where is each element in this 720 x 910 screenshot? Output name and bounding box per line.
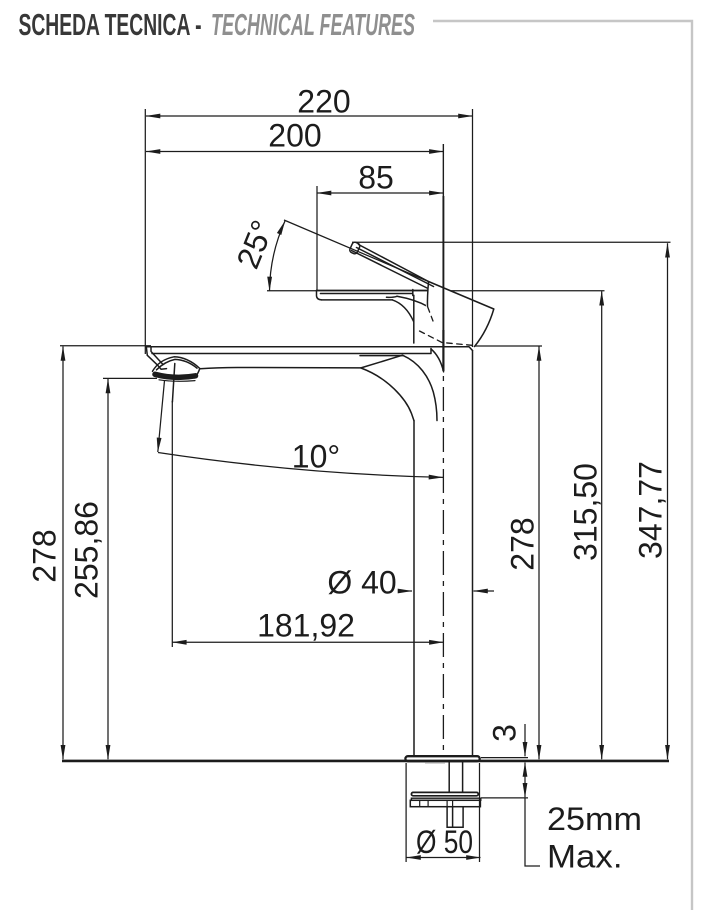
svg-text:278: 278	[505, 517, 541, 570]
svg-text:10°: 10°	[292, 439, 340, 475]
svg-text:278: 278	[27, 529, 63, 582]
svg-text:181,92: 181,92	[257, 608, 355, 644]
svg-text:255,86: 255,86	[69, 501, 105, 599]
svg-text:315,50: 315,50	[568, 463, 604, 561]
svg-text:Max.: Max.	[547, 839, 623, 875]
svg-text:220: 220	[297, 84, 350, 120]
svg-text:25mm: 25mm	[547, 801, 642, 837]
svg-text:TECHNICAL FEATURES: TECHNICAL FEATURES	[211, 7, 415, 42]
svg-text:Ø 40: Ø 40	[327, 565, 396, 601]
svg-text:Ø 50: Ø 50	[416, 824, 473, 860]
svg-text:85: 85	[358, 160, 394, 196]
svg-text:200: 200	[268, 118, 321, 154]
svg-text:3: 3	[487, 724, 523, 742]
svg-text:SCHEDA TECNICA -: SCHEDA TECNICA -	[19, 7, 202, 42]
svg-text:347,77: 347,77	[633, 461, 669, 559]
